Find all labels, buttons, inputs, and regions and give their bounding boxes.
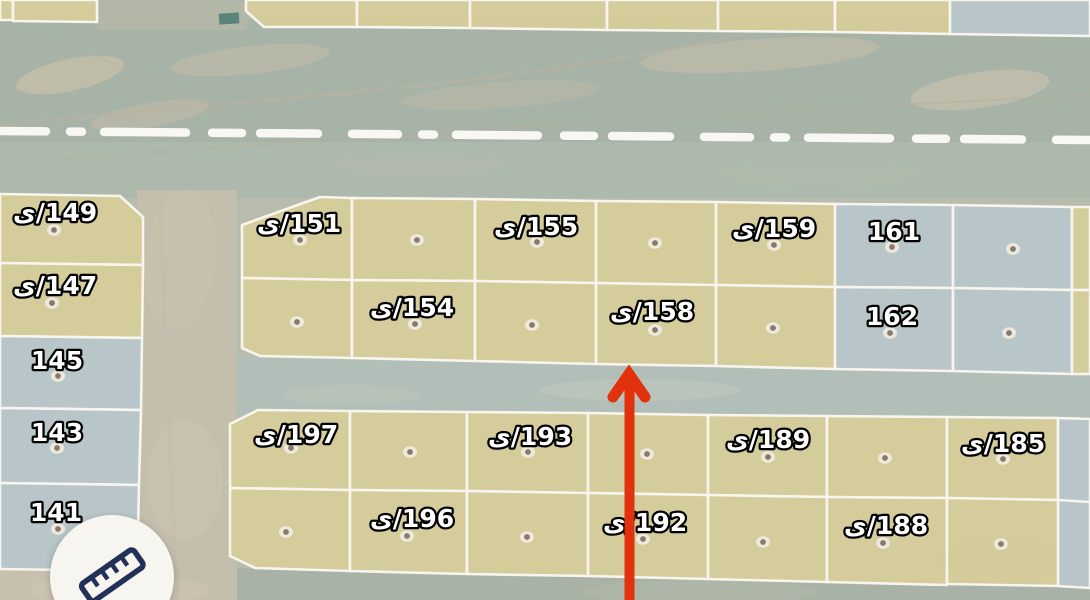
plot-centroid-dot-core — [414, 237, 420, 243]
plot-top-f[interactable] — [607, 0, 718, 31]
plot-bot-r2c3[interactable] — [467, 491, 588, 576]
plot-mid-r2c5[interactable] — [716, 285, 835, 369]
plot-197[interactable]: ى/197 — [230, 410, 350, 490]
plot-label-162: 162 — [866, 302, 918, 331]
plot-bot-r2c1[interactable] — [230, 488, 350, 571]
plot-centroid-dot-core — [49, 300, 55, 306]
plot-label-161: 161 — [868, 217, 920, 246]
plot-centroid-dot-core — [765, 454, 771, 460]
plot-149[interactable]: ى/149 — [0, 194, 143, 265]
plot-bot-r2c5[interactable] — [708, 495, 827, 582]
plot-label-196: ى/196 — [370, 504, 454, 533]
plot-188[interactable]: ى/188 — [827, 497, 947, 585]
plot-mid-r1c2[interactable] — [352, 198, 475, 281]
plot-centroid-dot-core — [404, 533, 410, 539]
plot-area[interactable] — [1072, 207, 1090, 290]
plot-area[interactable] — [470, 0, 607, 30]
plot-centroid-dot-core — [760, 539, 766, 545]
plot-154[interactable]: ى/154 — [352, 280, 475, 361]
plot-label-197: ى/197 — [254, 420, 338, 449]
plot-label-147: ى/147 — [13, 271, 97, 300]
plot-label-192: ى/192 — [603, 508, 687, 537]
plot-area[interactable] — [13, 0, 97, 22]
plot-192[interactable]: ى/192 — [588, 493, 708, 579]
plot-mid-r1c7[interactable] — [953, 205, 1072, 290]
plot-bot-r2c7[interactable] — [947, 498, 1058, 586]
plot-185[interactable]: ى/185 — [947, 417, 1058, 500]
plot-147[interactable]: ى/147 — [0, 263, 143, 338]
plot-label-188: ى/188 — [844, 511, 928, 540]
plot-158[interactable]: ى/158 — [596, 283, 716, 366]
plot-161[interactable]: 161 — [835, 204, 953, 288]
plot-label-189: ى/189 — [726, 425, 810, 454]
plot-area[interactable] — [0, 0, 13, 20]
plot-area[interactable] — [1072, 290, 1090, 374]
plot-centroid-dot-core — [652, 327, 658, 333]
plot-centroid-dot-core — [644, 451, 650, 457]
top-road-lower — [0, 142, 1090, 198]
plot-centroid-dot-core — [407, 449, 413, 455]
plot-centroid-dot-core — [882, 455, 888, 461]
plot-mid-r2c3[interactable] — [475, 281, 596, 364]
plot-centroid-dot-core — [1010, 246, 1016, 252]
plot-label-159: ى/159 — [732, 214, 816, 243]
plot-label-155: ى/155 — [494, 212, 578, 241]
plot-top-d[interactable] — [357, 0, 470, 28]
plot-label-151: ى/151 — [257, 209, 341, 238]
small-structure — [219, 12, 240, 24]
plot-label-193: ى/193 — [488, 422, 572, 451]
plot-centroid-dot-core — [998, 541, 1004, 547]
plot-label-145: 145 — [31, 346, 83, 375]
plot-label-154: ى/154 — [370, 293, 454, 322]
plot-189[interactable]: ى/189 — [708, 415, 827, 497]
plot-centroid-dot-core — [294, 319, 300, 325]
plot-196[interactable]: ى/196 — [350, 490, 467, 574]
plot-mid-r2c1[interactable] — [242, 278, 352, 358]
plot-centroid-dot-core — [652, 240, 658, 246]
plot-top-c[interactable] — [246, 0, 357, 27]
plot-centroid-dot-core — [51, 227, 57, 233]
plot-155[interactable]: ى/155 — [475, 199, 596, 283]
plot-top-e[interactable] — [470, 0, 607, 30]
plot-top-h[interactable] — [835, 0, 950, 34]
plot-area[interactable] — [246, 0, 357, 27]
plot-area[interactable] — [357, 0, 470, 28]
plot-145[interactable]: 145 — [0, 336, 142, 410]
plot-label-158: ى/158 — [610, 297, 694, 326]
plot-mid-r2c7[interactable] — [953, 288, 1072, 374]
satellite-map[interactable]: ى/149ى/147145143141ى/151ى/155ى/159161ى/1… — [0, 0, 1090, 600]
plot-bot-r1c4[interactable] — [588, 413, 708, 495]
plot-area[interactable] — [835, 0, 950, 34]
plot-label-149: ى/149 — [13, 198, 97, 227]
plot-top-a[interactable] — [0, 0, 13, 20]
plot-151[interactable]: ى/151 — [242, 197, 352, 280]
plot-162[interactable]: 162 — [835, 287, 953, 371]
plot-centroid-dot-core — [529, 322, 535, 328]
plot-mid-r2c8[interactable] — [1072, 290, 1090, 374]
plot-mid-r1c4[interactable] — [596, 201, 716, 285]
plot-label-185: ى/185 — [961, 429, 1045, 458]
plot-centroid-dot-core — [524, 534, 530, 540]
map-canvas[interactable]: ى/149ى/147145143141ى/151ى/155ى/159161ى/1… — [0, 0, 1090, 600]
plot-143[interactable]: 143 — [0, 408, 141, 485]
plot-centroid-dot-core — [1006, 330, 1012, 336]
plot-centroid-dot-core — [770, 325, 776, 331]
plot-centroid-dot-core — [880, 540, 886, 546]
plot-area[interactable] — [718, 0, 835, 32]
plot-area[interactable] — [950, 0, 1090, 36]
plot-top-i[interactable] — [950, 0, 1090, 36]
plot-top-b[interactable] — [13, 0, 97, 22]
plot-bot-r1c6[interactable] — [827, 416, 947, 498]
plot-193[interactable]: ى/193 — [467, 412, 588, 493]
plot-centroid-dot-core — [283, 529, 289, 535]
plot-mid-r1c8[interactable] — [1072, 207, 1090, 290]
measure-button[interactable] — [50, 515, 174, 600]
plot-area[interactable] — [607, 0, 718, 31]
plot-label-143: 143 — [31, 418, 83, 447]
plot-top-g[interactable] — [718, 0, 835, 32]
plot-bot-r1c2[interactable] — [350, 411, 467, 491]
plot-159[interactable]: ى/159 — [716, 202, 835, 287]
ruler-icon — [50, 515, 174, 600]
